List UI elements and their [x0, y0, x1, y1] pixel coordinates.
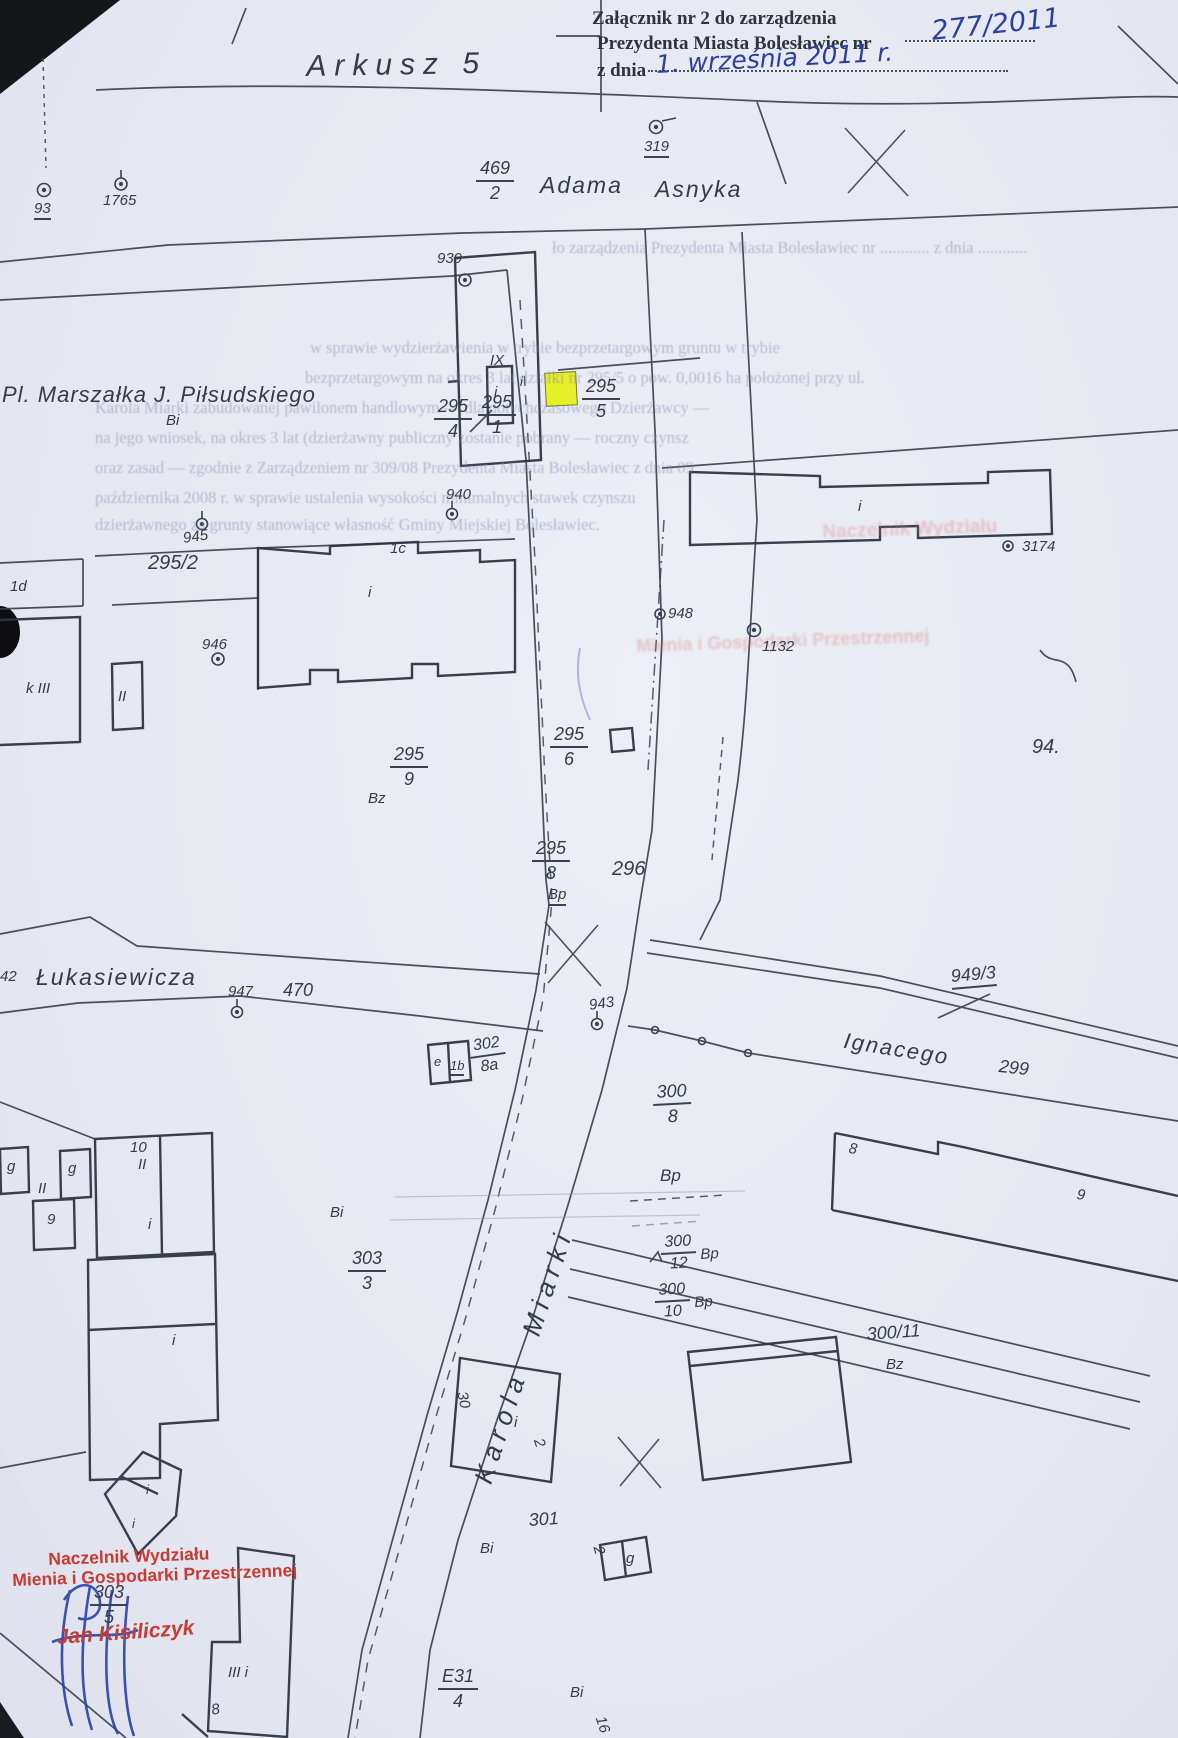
cross-mark-icon	[845, 128, 908, 196]
building-label: 10	[130, 1139, 147, 1156]
ghost-text: dzierżawnego za grunty stanowiące własno…	[95, 515, 600, 535]
building-label: 1b	[450, 1058, 464, 1076]
survey-point-icon	[115, 170, 127, 190]
building-label: g	[626, 1550, 634, 1567]
landuse-code: Bp	[700, 1245, 719, 1263]
building-label: g	[68, 1160, 76, 1177]
building-label: e	[434, 1054, 441, 1069]
building-label: i	[494, 384, 497, 401]
survey-point-icon	[459, 274, 471, 286]
building-label: 9	[47, 1211, 55, 1228]
parcel-number: 299	[998, 1056, 1030, 1080]
cross-marks	[545, 128, 908, 1488]
landuse-code: Bp	[694, 1293, 713, 1311]
sheet-title: Arkusz 5	[306, 47, 487, 84]
survey-point-label: 948	[668, 605, 693, 622]
survey-point-icon	[212, 653, 224, 665]
parcel-number: 94.	[1032, 736, 1060, 759]
building-label: g	[7, 1158, 15, 1175]
survey-point-label: 1765	[103, 192, 136, 209]
landuse-code: Bi	[166, 412, 179, 429]
ghost-text: oraz zasad — zgodnie z Zarządzeniem nr 3…	[95, 458, 694, 478]
survey-point-icon	[232, 999, 243, 1018]
ghost-text: w sprawie wydzierżawienia w trybie bezpr…	[310, 338, 780, 358]
survey-point-label: 946	[202, 636, 227, 653]
landuse-code: Bz	[368, 790, 386, 807]
ghost-text: października 2008 r. w sprawie ustalenia…	[95, 488, 636, 508]
survey-point-label: 945	[182, 527, 209, 547]
landuse-code: Bz	[886, 1356, 904, 1373]
parcel-number: 42	[0, 968, 17, 985]
ghost-text: ło zarządzenia Prezydenta Miasta Bolesła…	[552, 238, 1027, 258]
street-name-lukasiewicza: Łukasiewicza	[36, 964, 197, 991]
building-label: II	[138, 1156, 146, 1173]
survey-point-icon	[592, 1011, 603, 1030]
house-number: 30	[453, 1390, 473, 1410]
parcel-number: 295/2	[148, 552, 198, 575]
parcel-number: 470	[283, 980, 313, 1001]
cross-mark-icon	[618, 1437, 661, 1488]
survey-point-icon	[655, 609, 665, 619]
landuse-code: Bi	[570, 1684, 583, 1701]
building-label: III i	[228, 1664, 248, 1681]
survey-points	[38, 118, 1014, 1057]
street-name-adama: Adama	[540, 172, 623, 199]
building-label: i	[172, 1332, 175, 1349]
parcel-boundaries	[0, 0, 1178, 1738]
scanned-cadastral-map-page: Załącznik nr 2 do zarządzenia Prezydenta…	[0, 0, 1178, 1738]
survey-point-icon	[1003, 541, 1013, 551]
hole-punch	[0, 606, 20, 658]
building-label: i	[520, 374, 523, 389]
scan-corner-artifact-bottom	[0, 1702, 24, 1738]
building-label: IX	[490, 352, 504, 369]
attachment-note-line1: Załącznik nr 2 do zarządzenia	[592, 8, 837, 30]
parcel-number: 949/3	[950, 962, 997, 990]
survey-point-label: 940	[446, 486, 471, 503]
survey-point-label: 319	[644, 138, 669, 158]
survey-point-label: 93	[34, 200, 51, 220]
street-name-asnyka: Asnyka	[655, 176, 742, 203]
building-label: i	[514, 1414, 517, 1431]
building-label: 1d	[10, 578, 27, 595]
survey-point-label: 1132	[762, 638, 794, 655]
landuse-code: Bp	[660, 1166, 681, 1186]
street-name-pilsudskiego: Pl. Marszałka J. Piłsudskiego	[2, 382, 316, 408]
survey-point-label: 3174	[1022, 538, 1055, 555]
building-label: II	[38, 1180, 46, 1197]
building-label: 1c	[390, 540, 406, 557]
survey-point-label: 947	[228, 983, 253, 1000]
cross-mark-icon	[545, 922, 601, 986]
parcel-number: 301	[528, 1508, 559, 1531]
building-label: i	[148, 1216, 151, 1233]
z-dnia-label: z dnia	[597, 60, 646, 82]
building-label: II	[118, 688, 126, 705]
building-label: i	[858, 498, 861, 515]
parcel-number: 296	[612, 858, 645, 881]
building-label: i	[146, 1482, 149, 1497]
scan-corner-artifact	[0, 0, 120, 94]
parcel-number: 300/11	[866, 1320, 921, 1345]
survey-point-icon	[650, 118, 677, 134]
ghost-text: na jego wniosek, na okres 3 lat (dzierża…	[95, 428, 689, 448]
building-label: k III	[26, 680, 50, 697]
landuse-code: Bi	[480, 1540, 493, 1557]
landuse-code: Bi	[330, 1204, 343, 1221]
survey-point-label: 943	[588, 994, 615, 1014]
building-label: i	[368, 584, 371, 601]
building-label: i	[132, 1516, 135, 1531]
landuse-code: Bp	[548, 886, 566, 906]
survey-point-icon	[38, 184, 51, 197]
survey-point-label: 939	[437, 250, 462, 267]
map-linework	[0, 0, 1178, 1738]
